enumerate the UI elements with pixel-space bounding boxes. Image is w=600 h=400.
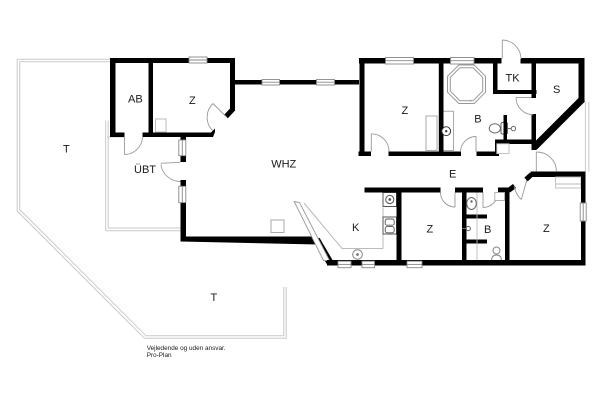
svg-text:B: B (484, 224, 491, 236)
svg-text:Z: Z (427, 224, 434, 236)
svg-text:K: K (352, 222, 360, 234)
svg-text:Pro-Plan: Pro-Plan (147, 352, 172, 359)
svg-text:T: T (63, 144, 70, 156)
svg-text:Vejledende og uden ansvar.: Vejledende og uden ansvar. (147, 345, 226, 352)
svg-text:AB: AB (128, 94, 143, 106)
svg-text:ÜBT: ÜBT (134, 164, 156, 176)
svg-text:S: S (553, 84, 560, 96)
svg-text:Z: Z (402, 105, 409, 117)
svg-text:WHZ: WHZ (271, 159, 296, 171)
svg-text:B: B (474, 113, 481, 125)
svg-text:TK: TK (506, 72, 521, 84)
svg-text:Z: Z (189, 95, 196, 107)
svg-text:E: E (449, 168, 456, 180)
svg-text:Z: Z (543, 223, 550, 235)
svg-text:T: T (211, 292, 218, 304)
